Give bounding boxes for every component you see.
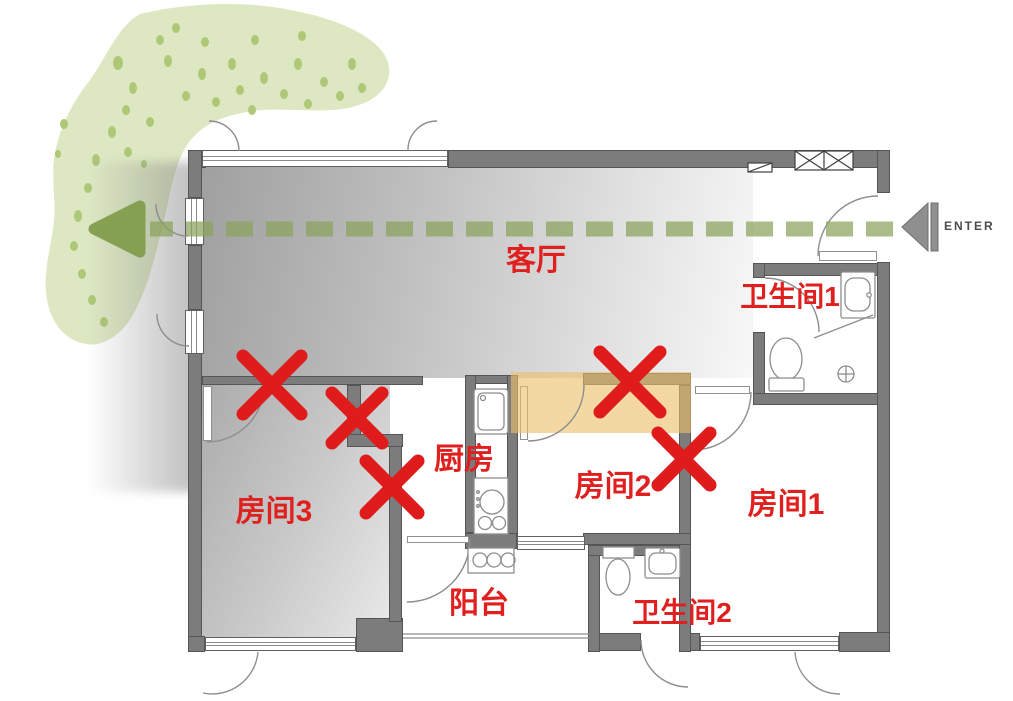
label-kitchen: 厨房 [434, 445, 494, 475]
label-room3: 房间3 [236, 497, 313, 527]
swing-room2 [528, 385, 584, 441]
enter-marker [902, 203, 938, 251]
swing-top-left [209, 121, 239, 151]
label-living-room: 客厅 [506, 246, 566, 276]
swing-left-2 [157, 314, 189, 346]
duct-symbols [748, 151, 853, 172]
bath2-toilet [606, 559, 630, 595]
washing-machine [468, 548, 514, 573]
bath2-toilet-tank [603, 547, 634, 558]
swing-top-right [408, 121, 437, 151]
label-balcony: 阳台 [449, 589, 509, 619]
bath1-toilet [770, 338, 802, 380]
label-bathroom1: 卫生间1 [740, 283, 840, 311]
label-room2: 房间2 [575, 472, 652, 502]
label-enter: ENTER [944, 220, 995, 232]
swing-bath2 [641, 640, 688, 687]
entry-path [94, 206, 893, 252]
entry-path-arrowhead [94, 206, 140, 252]
door-swings [156, 121, 878, 694]
label-bathroom2: 卫生间2 [632, 599, 732, 627]
swing-room3-ext [203, 652, 258, 694]
swing-room1-ext [795, 652, 840, 694]
label-room1: 房间1 [748, 490, 825, 520]
floor-plan-canvas: 客厅 卫生间1 厨房 房间2 房间1 房间3 阳台 卫生间2 ENTER [0, 0, 1013, 701]
enter-arrow-icon [902, 203, 928, 251]
